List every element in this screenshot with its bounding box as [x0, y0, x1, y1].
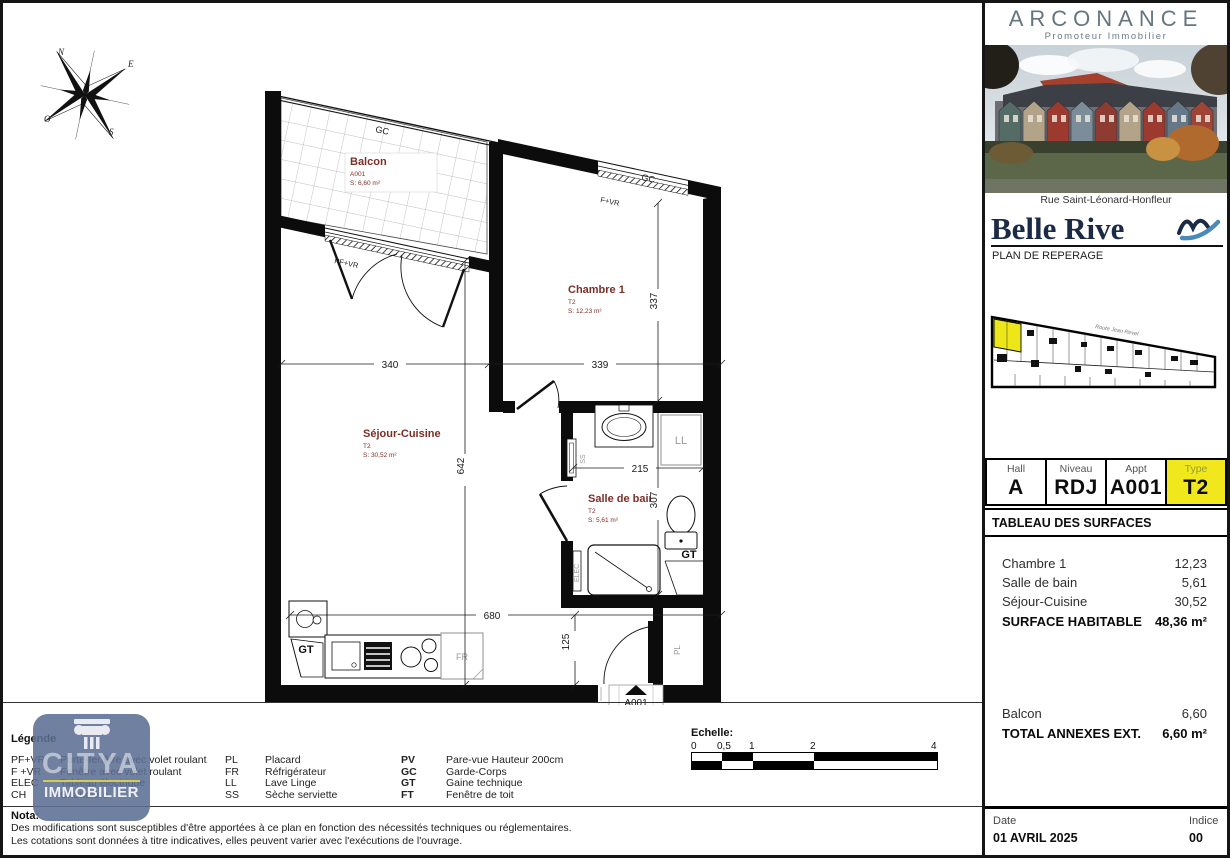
gt-bath-label: GT [681, 549, 697, 561]
plan-sheet: N E O S GC Balcon A001 S: 6,60 m² [0, 0, 1230, 858]
nota-title: Nota: [11, 810, 974, 822]
project-photo [985, 45, 1227, 193]
ll-label: LL [675, 435, 687, 447]
room-sejour-area: S: 30,52 m² [363, 452, 397, 459]
legend-group-3: PVPare-vue Hauteur 200cm GCGarde-Corps G… [401, 755, 563, 801]
ss-label: SS [580, 454, 587, 464]
citya-watermark: CITYA IMMOBILIER [33, 714, 150, 821]
highlighted-unit [994, 319, 1021, 352]
brand-tagline: Promoteur Immobilier [985, 31, 1227, 42]
dim-entry-depth: 125 [561, 633, 572, 650]
room-chambre-area: S: 12,23 m² [568, 308, 602, 315]
cooktop-icon [401, 647, 421, 667]
date-cell: Date 01 AVRIL 2025 [985, 809, 1119, 855]
room-balcon-name: Balcon [350, 156, 387, 168]
bedroom-window: GC F+VR [598, 161, 688, 208]
fr-label: FR [456, 652, 468, 662]
column-icon [70, 718, 114, 750]
bathroom-door [540, 486, 567, 541]
room-chambre-type: T2 [568, 299, 576, 306]
annex-row: Balcon 6,60 [985, 704, 1227, 723]
brand-block: ARCONANCE Promoteur Immobilier [985, 6, 1227, 47]
date-indice-block: Date 01 AVRIL 2025 Indice 00 [985, 806, 1227, 855]
citya-name: CITYA [33, 751, 150, 777]
gt-kitchen-label: GT [298, 644, 314, 656]
room-sejour-type: T2 [363, 443, 371, 450]
unit-cell-hall: Hall A [985, 458, 1047, 506]
dim-chambre-width: 339 [592, 360, 609, 371]
surface-row: Salle de bain 5,61 [985, 573, 1227, 592]
compass-n: N [57, 47, 65, 57]
pl-label: PL [673, 645, 682, 655]
brand-name: ARCONANCE [985, 6, 1227, 32]
dim-bain-depth: 307 [649, 491, 660, 508]
citya-sub: IMMOBILIER [33, 784, 150, 801]
surface-total-row: SURFACE HABITABLE 48,36 m² [985, 611, 1227, 631]
room-bain-type: T2 [588, 508, 596, 515]
scale-bar: Echelle: 0 0,5 1 2 4 [691, 727, 943, 770]
scale-ticks: 0 0,5 1 2 4 [691, 741, 943, 752]
compass-rose: N E O S [16, 25, 153, 165]
toilet-icon [667, 496, 695, 534]
nota-line-1: Des modifications sont susceptibles d'êt… [11, 822, 974, 835]
room-balcon-area: S: 6,60 m² [350, 180, 381, 187]
surfaces-table: TABLEAU DES SURFACES Chambre 1 12,23 Sal… [985, 508, 1227, 631]
duct-outline [665, 561, 703, 595]
surface-row: Chambre 1 12,23 [985, 554, 1227, 573]
project-name: Belle Rive [991, 213, 1124, 245]
dim-sejour-width: 340 [382, 360, 399, 371]
project-row: Belle Rive [991, 205, 1223, 247]
compass-e: E [127, 59, 134, 69]
dim-chambre-depth: 337 [649, 292, 660, 309]
dim-sejour-depth: 642 [456, 457, 467, 474]
nota-line-2: Les cotations sont données à titre indic… [11, 835, 974, 848]
scale-title: Echelle: [691, 727, 943, 739]
compass-s: S [109, 127, 114, 137]
unit-cell-type: Type T2 [1165, 458, 1227, 506]
dim-bain-width: 215 [632, 464, 649, 475]
room-bain-area: S: 5,61 m² [588, 517, 619, 524]
unit-cell-niveau: Niveau RDJ [1045, 458, 1107, 506]
window-fvr-label: F+VR [600, 195, 621, 208]
balcony-door-label: PF+VR [334, 256, 360, 270]
floor-plan: N E O S GC Balcon A001 S: 6,60 m² [3, 3, 982, 705]
bedroom-door [517, 381, 559, 409]
nota-section: Nota: Des modifications sont susceptible… [3, 806, 982, 855]
wave-icon [1175, 209, 1223, 243]
room-bain-name: Salle de bain [588, 493, 656, 505]
surface-row: Séjour-Cuisine 30,52 [985, 592, 1227, 611]
legend-group-2: PLPlacard FRRéfrigérateur LLLave Linge S… [225, 755, 337, 801]
surfaces-title: TABLEAU DES SURFACES [985, 508, 1227, 537]
locator-plan: Route Jean Revel [985, 300, 1227, 410]
room-balcon-code: A001 [350, 171, 366, 178]
annex-table: Balcon 6,60 TOTAL ANNEXES EXT. 6,60 m² [985, 704, 1227, 743]
unit-info-table: Hall A Niveau RDJ Appt A001 Type T2 [985, 458, 1227, 506]
dim-total-width: 680 [484, 611, 501, 622]
room-chambre-name: Chambre 1 [568, 284, 625, 296]
citya-divider [43, 780, 140, 782]
annex-total-row: TOTAL ANNEXES EXT. 6,60 m² [985, 723, 1227, 743]
kitchen-fixtures [289, 601, 483, 679]
compass-o: O [44, 114, 51, 124]
unit-cell-appt: Appt A001 [1105, 458, 1167, 506]
elec-label: ELEC [574, 564, 581, 582]
room-sejour-name: Séjour-Cuisine [363, 428, 441, 440]
title-block: ARCONANCE Promoteur Immobilier [982, 3, 1227, 855]
sheet-section-title: PLAN DE REPERAGE [992, 250, 1103, 262]
scale-bar-graphic [691, 752, 938, 770]
indice-cell: Indice 00 [1181, 809, 1226, 855]
